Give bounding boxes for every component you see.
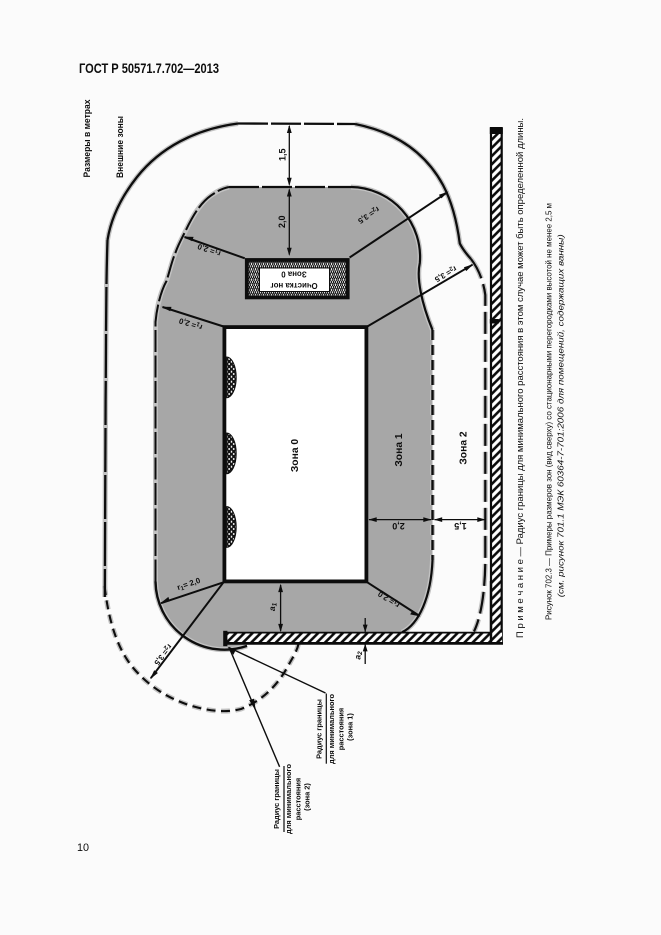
svg-text:(см. рисунок 701.1 МЭК 60364-7: (см. рисунок 701.1 МЭК 60364-7-701:2006 … [556,234,566,597]
svg-text:1,5: 1,5 [454,521,467,531]
svg-text:для минимального: для минимального [327,694,336,764]
svg-text:1,5: 1,5 [278,149,288,162]
svg-text:Рисунок 702.3 — Примеры размер: Рисунок 702.3 — Примеры размеров зон (ви… [544,203,554,620]
svg-text:Внешние зоны: Внешние зоны [115,116,125,178]
svg-text:Зона 0: Зона 0 [290,439,301,473]
svg-text:Зона 0: Зона 0 [281,270,307,279]
svg-text:а2: а2 [353,651,365,660]
svg-text:расстояния: расстояния [336,708,345,750]
svg-text:Радиус границы: Радиус границы [272,769,281,829]
svg-text:П р и м е ч а н и е — Радиус: П р и м е ч а н и е — Радиус границы для… [515,118,525,638]
svg-text:r2= 3,5: r2= 3,5 [151,642,174,668]
svg-text:Радиус границы: Радиус границы [314,699,323,759]
svg-text:(зона 1): (зона 1) [346,713,355,741]
svg-text:Размеры в метрах: Размеры в метрах [82,99,92,177]
svg-text:Зона 2: Зона 2 [459,431,470,465]
svg-text:(зона 2): (зона 2) [303,783,312,811]
svg-text:ГОСТ Р 50571.7.702—2013: ГОСТ Р 50571.7.702—2013 [79,61,219,76]
svg-text:расстояния: расстояния [293,778,302,820]
svg-text:Зона 1: Зона 1 [394,433,405,467]
svg-text:2,0: 2,0 [277,216,287,229]
svg-text:Очистка ног: Очистка ног [270,281,318,290]
svg-text:для минимального: для минимального [284,764,293,834]
svg-text:10: 10 [77,842,89,854]
svg-text:2,0: 2,0 [392,521,405,531]
